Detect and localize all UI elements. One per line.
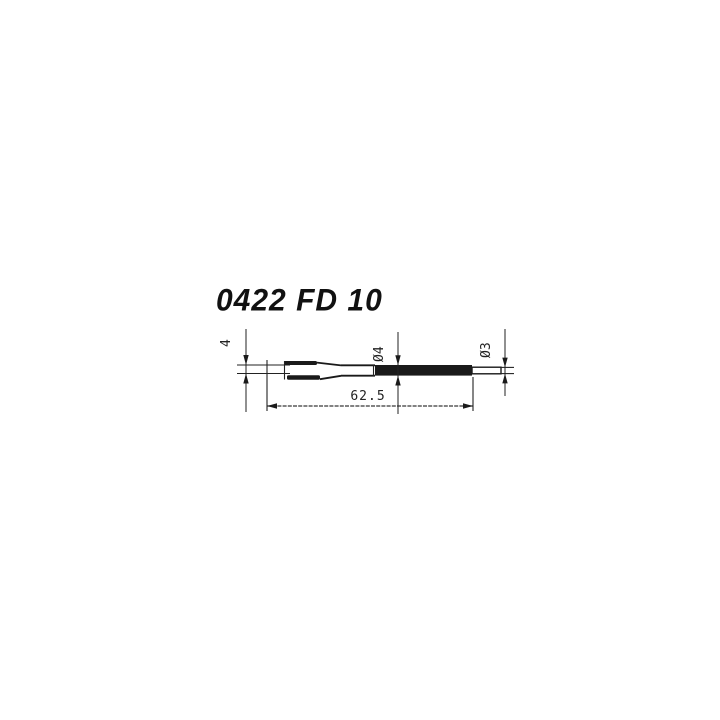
dimension-label-shaft-diameter: Ø4 (372, 346, 387, 362)
arrowhead-up (502, 374, 507, 384)
arrowhead-left (267, 403, 277, 408)
dimension-end-diameter: Ø3 (479, 329, 508, 396)
shaft-rod (375, 365, 472, 376)
dimension-label-end-diameter: Ø3 (479, 342, 494, 358)
arrowhead-up (243, 374, 248, 384)
arrowhead-down (395, 355, 400, 365)
taper-bottom-line (320, 376, 341, 379)
technical-drawing: 4 Ø4 Ø3 62.5 (0, 0, 720, 720)
arrowhead-up (395, 376, 400, 386)
chisel-bottom-band (287, 375, 320, 380)
scanned-drawing-page: 0422 FD 10 (0, 0, 720, 720)
arrowhead-down (243, 355, 248, 365)
arrowhead-down (502, 358, 507, 368)
chisel-top-band (284, 361, 317, 365)
dimension-label-overall-length: 62.5 (350, 389, 385, 404)
end-stub (472, 367, 501, 374)
arrowhead-right (463, 403, 473, 408)
dimension-tip-width: 4 (219, 329, 249, 412)
dimension-overall-length: 62.5 (267, 377, 473, 411)
taper-top-line (317, 363, 341, 366)
dimension-label-tip-width: 4 (219, 339, 234, 347)
